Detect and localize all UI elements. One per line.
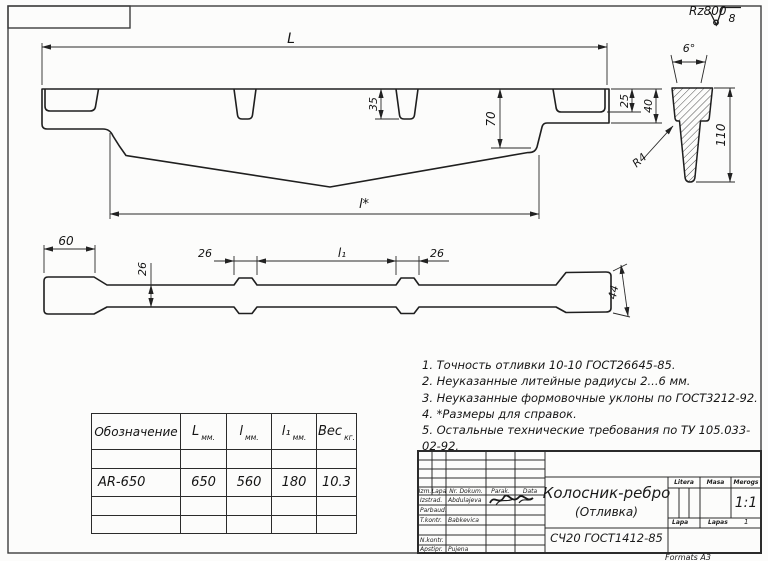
tb-header-lapa: Lapa [432, 487, 446, 495]
cell-designation: AR-650 [92, 469, 181, 497]
dim-44: 44 [606, 284, 622, 300]
note-line: 3. Неуказанные формовочные уклоны по ГОС… [422, 390, 762, 406]
tb-role-tkontr: T.kontr. [420, 517, 442, 524]
col-label: L [192, 424, 199, 439]
spec-header-L: Lмм. [181, 414, 227, 450]
tb-role-nkontr: N.kontr. [420, 537, 444, 544]
dim-110: 110 [714, 123, 728, 146]
spec-header-designation: Обозначение [92, 414, 181, 450]
dim-26-boss-left: 26 [198, 247, 212, 260]
technical-notes: 1. Точность отливки 10-10 ГОСТ26645-85. … [422, 357, 762, 455]
note-line: 4. *Размеры для справок. [422, 406, 762, 422]
tb-header-nr-dokum: Nr. Dokum. [446, 487, 486, 495]
col-unit: мм. [201, 433, 215, 442]
note-line: 1. Точность отливки 10-10 ГОСТ26645-85. [422, 357, 762, 373]
drawing-sheet: L 25 40 35 70 l* 6° R4 110 Rz800 8 60 26… [0, 0, 768, 561]
spec-data-row: AR-650 650 560 180 10.3 [92, 469, 357, 497]
plan-view-outline [44, 272, 611, 314]
tb-role-izstrad: Izstrad. [420, 497, 442, 504]
roughness-label: Rz800 [689, 4, 727, 18]
col-unit: мм. [245, 433, 259, 442]
tb-litera-label: Litera [668, 478, 700, 487]
col-unit: кг. [344, 433, 355, 442]
note-line: 5. Остальные технические требования по Т… [422, 422, 762, 455]
col-label: l₁ [282, 424, 291, 439]
tb-role-parbaud: Parbaud. [420, 507, 447, 514]
cell-l: 560 [227, 469, 272, 497]
cell-l1: 180 [272, 469, 317, 497]
dim-40: 40 [642, 99, 655, 113]
dim-25: 25 [618, 94, 631, 108]
dim-angle: 6° [683, 42, 696, 55]
spec-empty-row [92, 516, 357, 534]
dimension-labels: L 25 40 35 70 l* 6° R4 110 Rz800 8 60 26… [58, 4, 735, 300]
side-view-dimensions [42, 43, 735, 219]
tb-role-apstipr: Apstipr. [420, 546, 443, 553]
tb-lapas-label: Lapas [708, 519, 728, 526]
spec-table: Обозначение Lмм. lмм. l₁мм. Вескг. AR-65… [91, 413, 357, 534]
dim-26-bar: 26 [136, 262, 149, 276]
plan-view [44, 272, 611, 314]
dim-r4: R4 [630, 151, 650, 170]
side-view [42, 89, 609, 187]
tb-name-tkontr: Babkevica [448, 517, 479, 524]
col-label: l [239, 424, 243, 439]
dim-26-boss-right: 26 [430, 247, 444, 260]
tb-lapas-value: 1 [744, 518, 748, 526]
col-label: Вес [318, 424, 342, 439]
tb-name-izstrad: Abdulajeva [448, 497, 481, 504]
dim-l1: l₁ [338, 246, 346, 260]
signature-scribble [490, 495, 533, 505]
spec-empty-row [92, 497, 357, 516]
dim-35: 35 [367, 97, 380, 111]
note-line: 2. Неуказанные литейные радиусы 2...6 мм… [422, 373, 762, 389]
tb-masa-label: Masa [700, 478, 731, 487]
tb-header-data: Data [515, 487, 545, 495]
cell-weight: 10.3 [317, 469, 357, 497]
cell-L: 650 [181, 469, 227, 497]
col-unit: мм. [293, 433, 307, 442]
side-view-outline [42, 89, 609, 187]
dim-60: 60 [58, 234, 74, 248]
spec-header-l1: l₁мм. [272, 414, 317, 450]
tb-merogs-label: Merogs [731, 478, 761, 487]
dim-L: L [287, 31, 295, 47]
spec-header-l: lмм. [227, 414, 272, 450]
material-spec: СЧ20 ГОСТ1412-85 [546, 530, 667, 546]
right-pocket [553, 89, 605, 112]
tb-header-parak: Parak. [486, 487, 515, 495]
tb-name-apstipr: Pujena [448, 546, 468, 553]
spec-empty-row [92, 450, 357, 469]
spec-header-weight: Вескг. [317, 414, 357, 450]
scale-value: 1:1 [731, 489, 761, 517]
tb-header-izm: Izm. [418, 487, 432, 495]
drawing-title: Колосник-ребро [546, 481, 667, 505]
left-pocket [45, 89, 99, 111]
cross-section [672, 88, 713, 182]
drawing-subtitle: (Отливка) [546, 504, 667, 519]
roughness-value: 8 [729, 12, 736, 25]
dim-l-ref: l* [359, 197, 370, 212]
slot-right [396, 89, 418, 119]
tb-lapa-label: Lapa [672, 519, 688, 526]
dim-70: 70 [484, 111, 498, 127]
format-label: Formats A3 [645, 553, 731, 561]
slot-left [234, 89, 256, 119]
